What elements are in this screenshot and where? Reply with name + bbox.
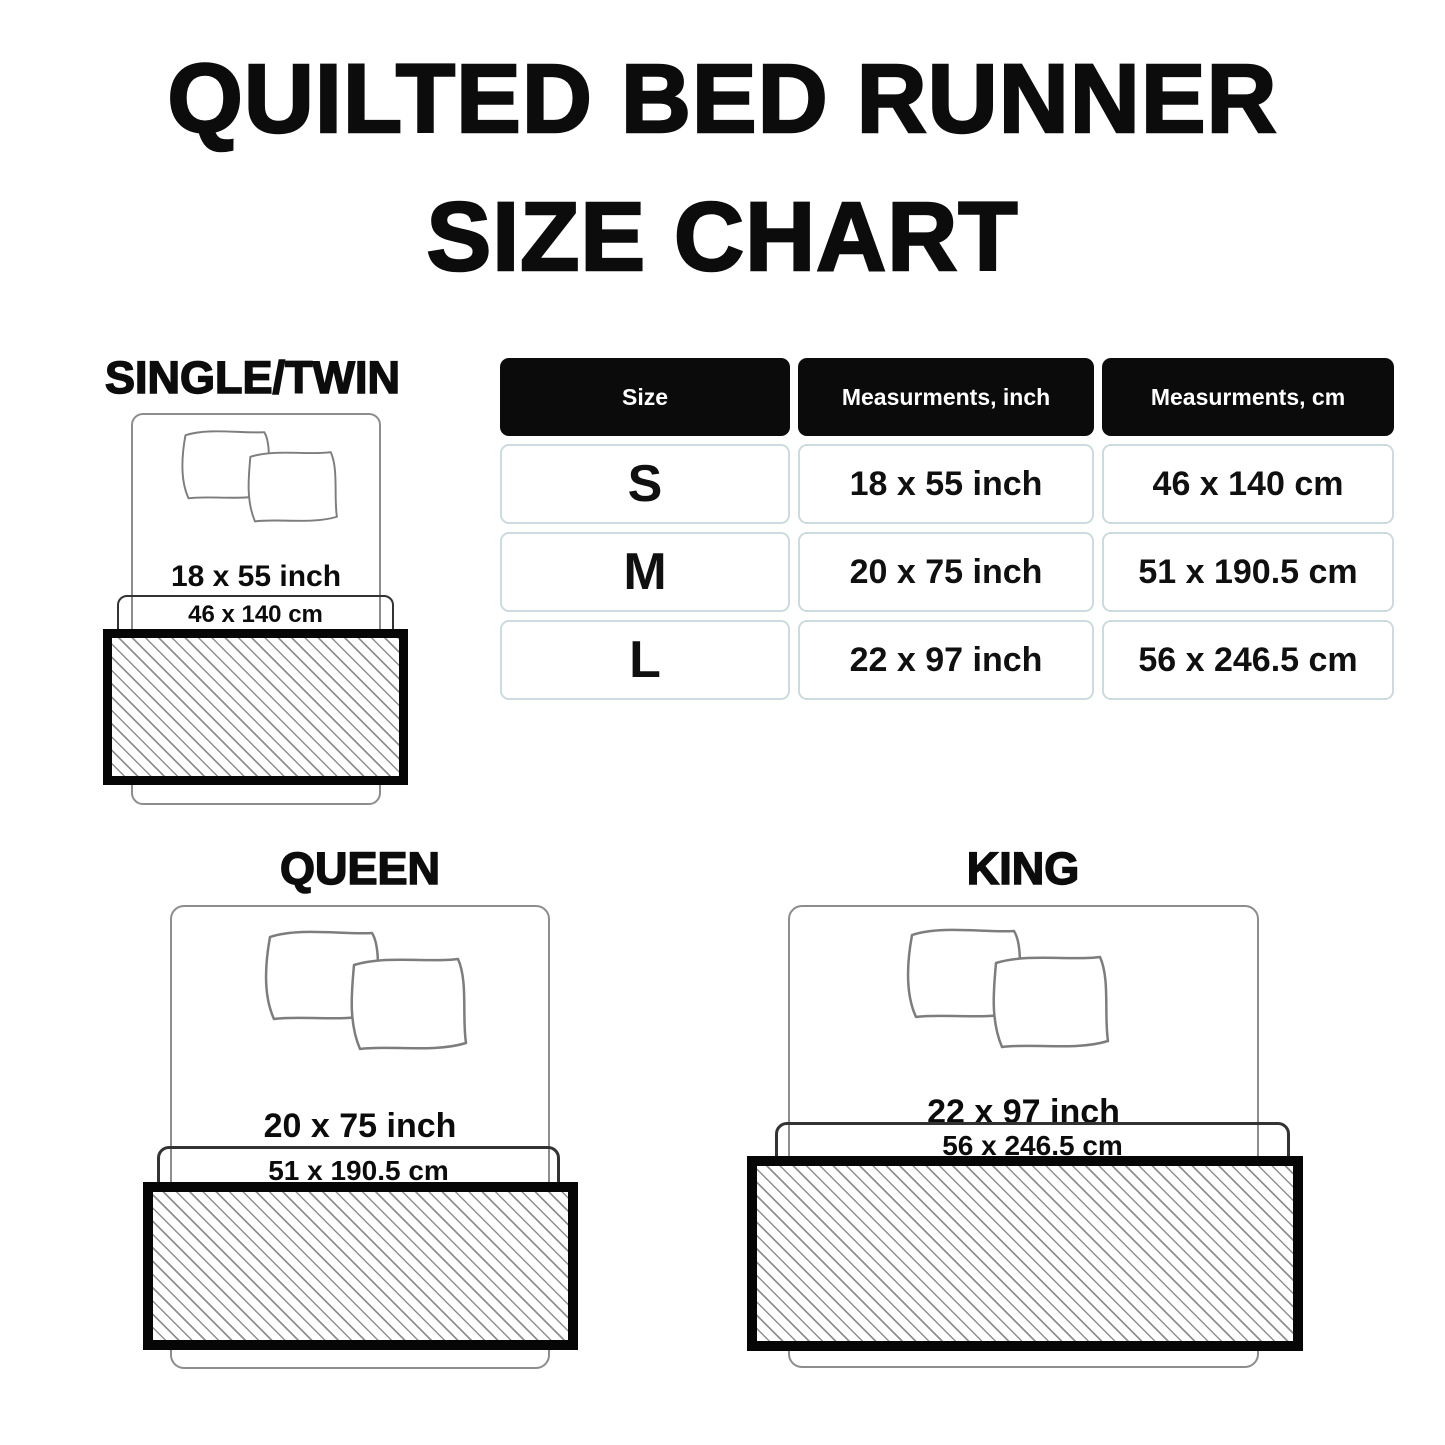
table-cell-inch-m: 20 x 75 inch (798, 532, 1094, 612)
pillow-front (352, 959, 466, 1049)
pillows-icon (170, 426, 340, 526)
bed-heading-king: KING (720, 843, 1326, 895)
runner-size-inch-label: 18 x 55 inch (131, 560, 381, 594)
table-cell-inch-l: 22 x 97 inch (798, 620, 1094, 700)
bed-heading-queen: QUEEN (110, 843, 610, 895)
table-cell-size-l: L (500, 620, 790, 700)
pillow-front (249, 452, 337, 521)
table-cell-cm-s: 46 x 140 cm (1102, 444, 1394, 524)
table-cell-cm-m: 51 x 190.5 cm (1102, 532, 1394, 612)
pillows-icon (892, 923, 1112, 1053)
runner-size-inch-label: 20 x 75 inch (170, 1107, 550, 1146)
bed-section-single-twin: SINGLE/TWIN 18 x 55 inch 46 x 140 cm (80, 352, 425, 832)
table-cell-cm-l: 56 x 246.5 cm (1102, 620, 1394, 700)
table-header-inch: Measurments, inch (798, 358, 1094, 436)
table-header-size: Size (500, 358, 790, 436)
table-cell-size-m: M (500, 532, 790, 612)
table-cell-inch-s: 18 x 55 inch (798, 444, 1094, 524)
bed-section-queen: QUEEN 20 x 75 inch 51 x 190.5 cm (110, 843, 610, 1393)
size-table: Size Measurments, inch Measurments, cm S… (500, 358, 1394, 700)
runner-size-cm-label: 46 x 140 cm (188, 601, 323, 628)
pillow-front (994, 957, 1108, 1047)
bed-runner-swatch (103, 629, 408, 785)
title-line-1: QUILTED BED RUNNER (0, 30, 1445, 168)
bed-heading-single-twin: SINGLE/TWIN (80, 352, 425, 404)
bed-runner-swatch (747, 1156, 1303, 1351)
bed-section-king: KING 22 x 97 inch 56 x 246.5 cm (720, 843, 1350, 1393)
bed-runner-swatch (143, 1182, 578, 1350)
page-title: QUILTED BED RUNNER SIZE CHART (0, 30, 1445, 305)
pillows-icon (250, 925, 470, 1055)
size-chart-infographic: QUILTED BED RUNNER SIZE CHART Size Measu… (0, 0, 1445, 1445)
table-header-cm: Measurments, cm (1102, 358, 1394, 436)
table-cell-size-s: S (500, 444, 790, 524)
title-line-2: SIZE CHART (0, 168, 1445, 306)
